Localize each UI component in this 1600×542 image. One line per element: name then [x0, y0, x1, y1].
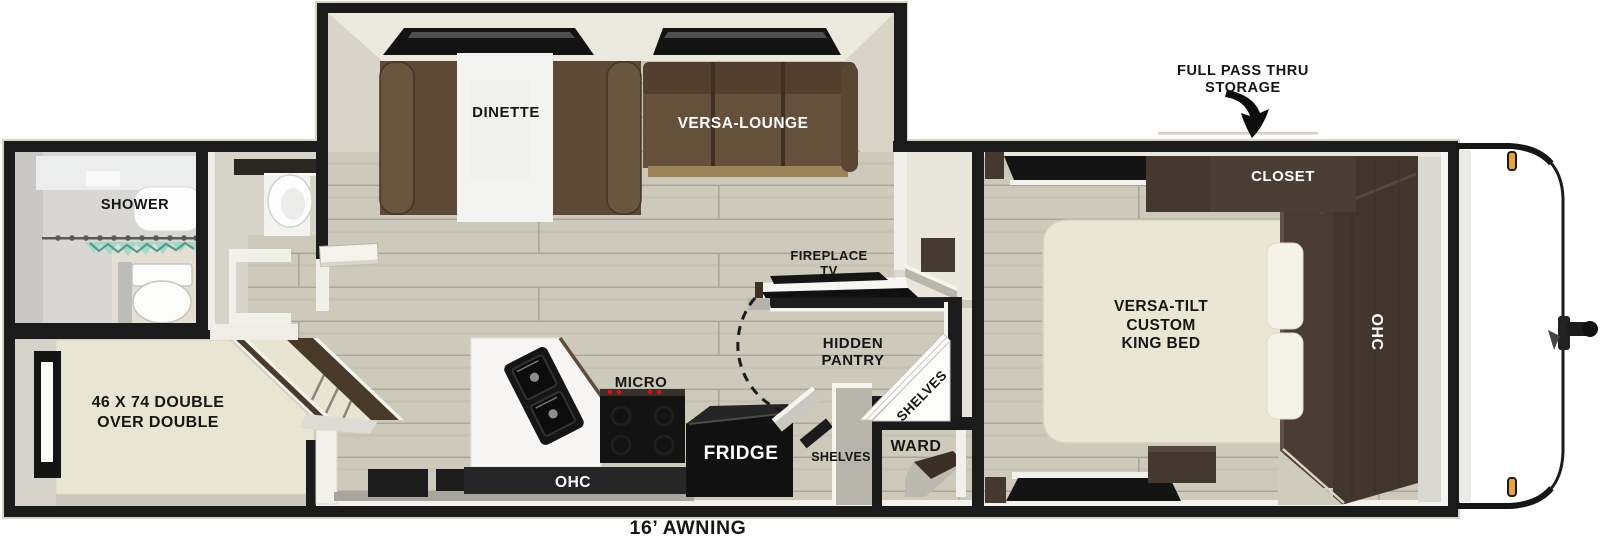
- svg-text:DINETTE: DINETTE: [472, 104, 540, 121]
- svg-text:SHOWER: SHOWER: [101, 197, 169, 213]
- svg-text:46 X 74 DOUBLE: 46 X 74 DOUBLE: [92, 394, 225, 411]
- svg-text:FULL PASS THRU: FULL PASS THRU: [1177, 63, 1309, 79]
- svg-text:HIDDEN: HIDDEN: [823, 335, 884, 352]
- svg-text:TV: TV: [820, 263, 837, 278]
- svg-text:OVER DOUBLE: OVER DOUBLE: [97, 414, 219, 431]
- svg-text:STORAGE: STORAGE: [1205, 80, 1281, 96]
- svg-text:SHELVES: SHELVES: [811, 450, 871, 464]
- svg-text:16’ AWNING: 16’ AWNING: [630, 517, 747, 537]
- svg-text:FRIDGE: FRIDGE: [704, 443, 779, 464]
- svg-text:OHC: OHC: [555, 474, 591, 491]
- svg-text:MICRO: MICRO: [615, 374, 668, 391]
- svg-text:KING BED: KING BED: [1122, 335, 1201, 352]
- svg-text:OHC: OHC: [1368, 313, 1385, 350]
- svg-text:CUSTOM: CUSTOM: [1126, 317, 1195, 334]
- svg-text:VERSA-LOUNGE: VERSA-LOUNGE: [678, 115, 809, 132]
- svg-text:CLOSET: CLOSET: [1251, 168, 1315, 185]
- svg-text:VERSA-TILT: VERSA-TILT: [1114, 298, 1208, 315]
- svg-text:FIREPLACE: FIREPLACE: [790, 248, 867, 263]
- svg-text:WARD: WARD: [891, 438, 942, 455]
- svg-text:PANTRY: PANTRY: [822, 352, 885, 369]
